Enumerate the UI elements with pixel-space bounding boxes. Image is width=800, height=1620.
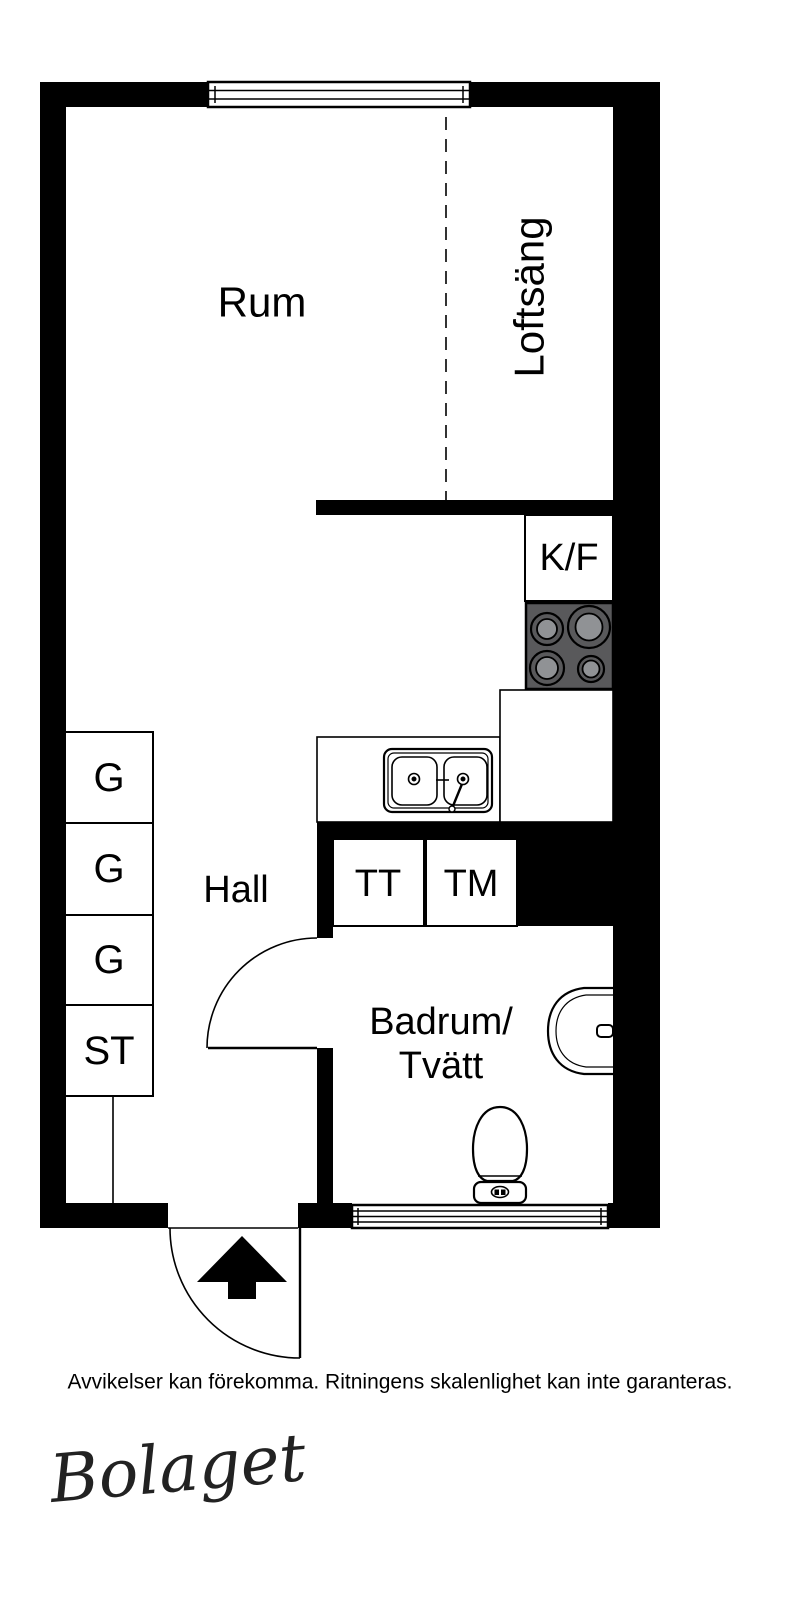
wall-bathroom-left-lower [317,1048,333,1203]
wall-left [40,82,66,1228]
wall-bathroom-left-upper [317,839,333,938]
fridge-freezer-label: K/F [539,537,598,579]
window-top-icon [208,82,470,107]
wall-right-of-washer [517,839,613,926]
wardrobe-label-2: G [93,847,124,891]
stove-icon [526,603,613,689]
kitchen-sink-icon [384,749,492,812]
entrance-arrow-icon [197,1236,287,1299]
loft-bed-label: Loftsäng [506,216,553,377]
floorplan-page: Rum Loftsäng Hall Badrum/ Tvätt K/F TT T… [0,0,800,1620]
washer-label: TM [444,863,499,905]
dryer-label: TT [355,863,401,905]
floorplan-drawing: Rum Loftsäng Hall Badrum/ Tvätt K/F TT T… [0,0,800,1620]
disclaimer-text: Avvikelser kan förekomma. Ritningens ska… [68,1371,733,1394]
bathroom-sink-icon [548,988,613,1074]
wall-under-counter [317,822,613,839]
wardrobe-label-1: G [93,756,124,800]
bathroom-label-line2: Tvätt [399,1045,484,1087]
room-label: Rum [218,279,307,326]
toilet-icon [473,1107,527,1203]
cleaning-closet-label: ST [83,1029,134,1073]
wall-bottom-right [608,1203,660,1228]
brand-logo: Bolaget [46,1419,310,1518]
wall-bottom-left [40,1203,168,1228]
window-bathroom-icon [352,1205,608,1228]
wall-kitchen-divider [316,500,613,515]
wall-bottom-mid [298,1203,352,1228]
wall-right [613,82,660,1228]
bathroom-door-swing-icon [207,938,317,1048]
wardrobe-label-3: G [93,938,124,982]
hall-label: Hall [203,869,268,911]
bathroom-label-line1: Badrum/ [369,1001,513,1043]
